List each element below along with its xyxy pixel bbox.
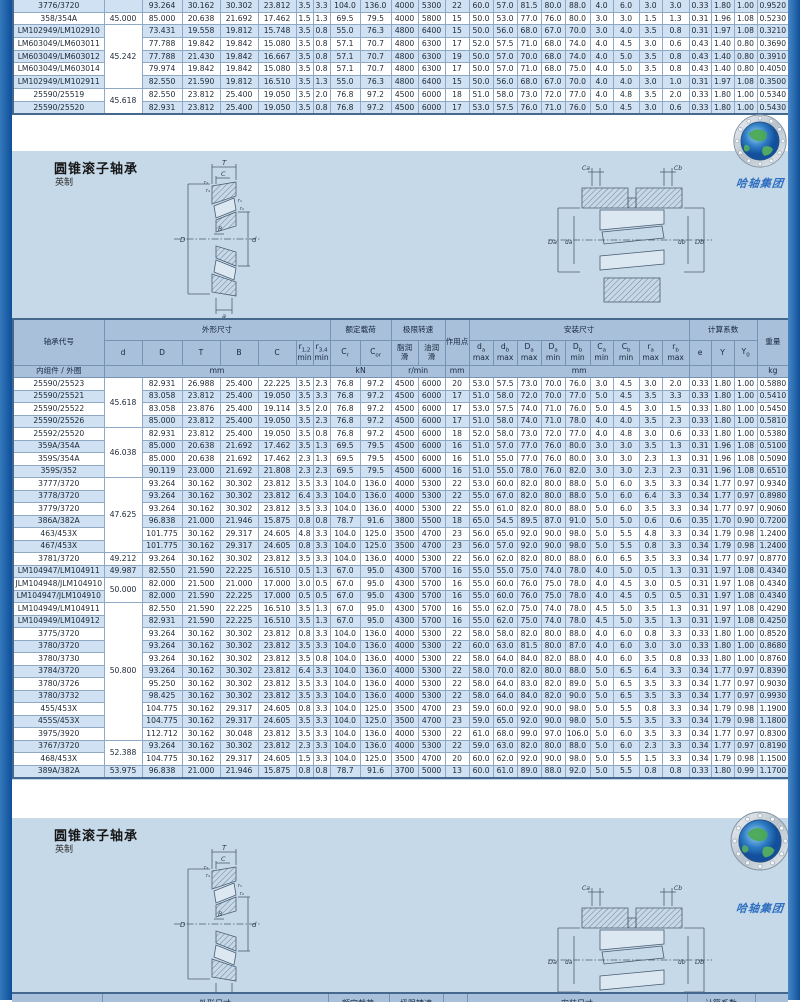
spec-cell: 22	[445, 478, 469, 491]
spec-cell: 3.5	[639, 653, 662, 666]
spec-cell: 73.0	[517, 428, 541, 441]
bearing-code: LM104947/LM104911	[13, 565, 104, 578]
spec-cell: 0.5	[662, 578, 689, 591]
spec-cell: 13	[445, 765, 469, 778]
spec-cell: 0.98	[734, 540, 757, 553]
spec-cell: 3.5	[296, 0, 313, 12]
unit-mm: mm	[445, 366, 469, 378]
spec-cell: 2.3	[662, 465, 689, 478]
spec-cell: 1.3	[313, 453, 330, 466]
spec-cell: 6.0	[613, 503, 639, 516]
spec-cell: 25.400	[220, 378, 258, 391]
spec-cell: 71.0	[541, 403, 565, 416]
spec-cell: 30.162	[182, 715, 220, 728]
col-header: d	[104, 341, 142, 366]
spec-cell: 0.34	[689, 540, 711, 553]
spec-cell: 3.5	[296, 378, 313, 391]
spec-cell: 104.0	[330, 728, 360, 741]
spec-cell: 1.3	[662, 603, 689, 616]
spec-cell: 5300	[418, 665, 445, 678]
spec-cell: 4.0	[590, 38, 613, 51]
spec-cell: 17	[445, 415, 469, 428]
spec-cell: 79.974	[142, 63, 182, 76]
spec-cell: 4500	[391, 440, 418, 453]
dim-label-r1: r₁	[238, 198, 242, 204]
spec-cell: 51.0	[469, 440, 493, 453]
spec-cell: 1.80	[711, 88, 734, 101]
spec-cell: 5300	[418, 653, 445, 666]
spec-cell: 3.3	[313, 490, 330, 503]
spec-cell: 5.5	[613, 703, 639, 716]
spec-cell: 18	[445, 515, 469, 528]
spec-cell: 1.3	[662, 12, 689, 25]
spec-cell: 1.5	[662, 403, 689, 416]
spec-cell: 67.0	[330, 578, 360, 591]
spec-cell: 6000	[418, 378, 445, 391]
spec-cell: 5300	[418, 553, 445, 566]
spec-cell: 3800	[391, 515, 418, 528]
dim-label-D: D	[180, 921, 186, 929]
bearing-code: 463/453X	[13, 528, 104, 541]
spec-cell: 0.5880	[757, 378, 789, 391]
spec-cell: 3.5	[296, 415, 313, 428]
dim-label-T: T	[222, 159, 227, 167]
spec-cell: 25.400	[220, 390, 258, 403]
spec-cell: 1.97	[711, 590, 734, 603]
spec-cell: 50.0	[469, 50, 493, 63]
spec-cell: 4.0	[590, 88, 613, 101]
spec-cell: 3.3	[662, 503, 689, 516]
spec-cell: 78.0	[565, 590, 590, 603]
col-header: Cr	[330, 341, 360, 366]
spec-cell: 0.3910	[757, 50, 789, 63]
spec-cell: 75.0	[565, 63, 590, 76]
spec-cell: 17	[445, 63, 469, 76]
spec-cell: 16	[445, 603, 469, 616]
col-group-speed: 极限转速	[400, 998, 432, 1002]
spec-cell: 30.162	[182, 503, 220, 516]
spec-cell: 23.812	[258, 740, 296, 753]
spec-cell: 84.0	[517, 690, 541, 703]
spec-cell: 85.000	[142, 12, 182, 25]
dim-label-r4: r₄	[206, 873, 210, 879]
column-divider	[328, 994, 329, 1002]
spec-cell: 1.08	[734, 603, 757, 616]
bearing-code: LM104949/LM104911	[13, 603, 104, 616]
spec-cell: 95.0	[360, 578, 391, 591]
spec-cell: 60.0	[493, 590, 517, 603]
bore-diameter: 49.212	[104, 553, 142, 566]
spec-cell: 0.31	[689, 440, 711, 453]
col-header: rbmax	[662, 341, 689, 366]
spec-cell: 1.1900	[757, 703, 789, 716]
spec-cell: 0.9930	[757, 690, 789, 703]
spec-cell: 1.3	[313, 615, 330, 628]
spec-cell: 3.5	[639, 503, 662, 516]
spec-cell: 136.0	[360, 640, 391, 653]
spec-cell: 30.302	[220, 740, 258, 753]
spec-cell: 30.302	[220, 690, 258, 703]
spec-cell: 0.31	[689, 603, 711, 616]
spec-cell: 3.0	[613, 12, 639, 25]
unit-mm: mm	[469, 366, 689, 378]
spec-cell: 20.638	[182, 12, 220, 25]
bearing-code: 389A/382A	[13, 765, 104, 778]
spec-cell: 4.0	[590, 590, 613, 603]
spec-cell: 93.264	[142, 640, 182, 653]
spec-cell: 1.79	[711, 753, 734, 766]
spec-cell: 16	[445, 440, 469, 453]
spec-cell: 30.162	[182, 540, 220, 553]
spec-cell: 1.08	[734, 578, 757, 591]
spec-cell: 76.0	[541, 12, 565, 25]
spec-cell: 0.97	[734, 553, 757, 566]
spec-cell: 4.0	[590, 0, 613, 12]
spec-cell: 67.0	[541, 25, 565, 38]
spec-cell: 29.317	[220, 715, 258, 728]
spec-cell: 104.0	[330, 690, 360, 703]
spec-cell: 1.08	[734, 615, 757, 628]
spec-cell: 0.5090	[757, 453, 789, 466]
spec-cell: 0.98	[734, 703, 757, 716]
spec-cell: 3.3	[662, 728, 689, 741]
spec-cell: 1.80	[711, 378, 734, 391]
spec-cell: 0.5410	[757, 390, 789, 403]
spec-cell: 0.8	[313, 50, 330, 63]
dim-label-Ca: Ca	[582, 885, 590, 892]
spec-cell: 57.0	[493, 440, 517, 453]
spec-cell: 6000	[418, 101, 445, 114]
spec-cell: 0.33	[689, 101, 711, 114]
spec-cell: 97.2	[360, 428, 391, 441]
spec-cell: 1.77	[711, 478, 734, 491]
spec-cell: 3.0	[590, 465, 613, 478]
spec-cell: 89.0	[565, 678, 590, 691]
spec-cell: 4.0	[613, 76, 639, 89]
spec-cell: 3.3	[313, 728, 330, 741]
bearing-section-diagram: T C D d B a r₃ r₄ r₁ r₂	[168, 843, 268, 1000]
spec-cell: 2.3	[639, 465, 662, 478]
bearing-code: 3778/3720	[13, 490, 104, 503]
col-header: Dbmin	[565, 341, 590, 366]
spec-cell: 104.0	[330, 715, 360, 728]
spec-cell: 0.97	[734, 728, 757, 741]
spec-cell: 24.605	[258, 703, 296, 716]
spec-cell: 0.4340	[757, 578, 789, 591]
dim-label-Db: Db	[695, 238, 704, 246]
spec-cell: 21.808	[258, 465, 296, 478]
page-left-border	[0, 0, 12, 1000]
spec-cell: 22	[445, 553, 469, 566]
spec-cell: 0.8	[639, 703, 662, 716]
spec-cell: 4.0	[590, 640, 613, 653]
spec-cell: 53.0	[469, 403, 493, 416]
spec-cell: 1.3	[313, 603, 330, 616]
spec-cell: 0.34	[689, 678, 711, 691]
spec-cell: 4.5	[613, 403, 639, 416]
spec-cell: 30.162	[182, 490, 220, 503]
spec-cell: 3.3	[313, 628, 330, 641]
spec-cell: 25.400	[220, 428, 258, 441]
spec-cell: 30.048	[220, 728, 258, 741]
spec-cell: 0.31	[689, 453, 711, 466]
spec-cell: 104.775	[142, 703, 182, 716]
spec-cell: 64.0	[493, 653, 517, 666]
spec-cell: 19.812	[220, 76, 258, 89]
spec-cell: 6000	[418, 453, 445, 466]
col-header: e	[689, 341, 711, 366]
spec-cell: 97.0	[541, 728, 565, 741]
spec-cell: 0.80	[734, 50, 757, 63]
spec-cell: 5.0	[590, 478, 613, 491]
spec-cell: 55.0	[330, 76, 360, 89]
spec-cell: 4.8	[296, 528, 313, 541]
spec-cell: 1.1800	[757, 715, 789, 728]
spec-cell: 72.0	[541, 88, 565, 101]
spec-cell: 2.3	[296, 465, 313, 478]
spec-cell: 60.0	[469, 640, 493, 653]
spec-cell: 80.0	[565, 440, 590, 453]
spec-cell: 3.0	[639, 428, 662, 441]
spec-cell: 1.5	[296, 12, 313, 25]
spec-cell: 6000	[418, 465, 445, 478]
spec-cell: 4000	[391, 478, 418, 491]
spec-cell: 1.08	[734, 565, 757, 578]
spec-cell: 5.0	[590, 101, 613, 114]
spec-cell: 0.97	[734, 690, 757, 703]
spec-cell: 0.99	[734, 765, 757, 778]
spec-cell: 65.0	[469, 515, 493, 528]
spec-cell: 82.0	[517, 553, 541, 566]
spec-cell: 5.0	[590, 503, 613, 516]
spec-cell: 76.0	[517, 101, 541, 114]
spec-cell: 82.550	[142, 76, 182, 89]
spec-cell: 1.80	[711, 765, 734, 778]
spec-cell: 0.9060	[757, 503, 789, 516]
spec-cell: 0.35	[689, 515, 711, 528]
spec-cell: 82.0	[517, 628, 541, 641]
spec-cell: 85.000	[142, 453, 182, 466]
spec-cell: 4.0	[590, 76, 613, 89]
spec-cell: 2.3	[639, 740, 662, 753]
spec-cell: 3.3	[662, 528, 689, 541]
spec-cell: 3.3	[662, 678, 689, 691]
spec-cell: 3.3	[313, 478, 330, 491]
spec-cell: 30.162	[182, 728, 220, 741]
spec-cell: 84.0	[517, 653, 541, 666]
spec-cell: 0.33	[689, 403, 711, 416]
spec-cell: 23.812	[258, 490, 296, 503]
spec-cell: 23.812	[258, 678, 296, 691]
spec-cell: 22	[445, 740, 469, 753]
spec-cell: 21.590	[182, 603, 220, 616]
page-right-border	[788, 0, 800, 1000]
spec-cell: 57.1	[330, 63, 360, 76]
spec-cell: 3.5	[639, 415, 662, 428]
spec-cell: 97.2	[360, 390, 391, 403]
spec-cell: 3.5	[296, 640, 313, 653]
spec-cell: 4500	[391, 403, 418, 416]
spec-cell: 19.050	[258, 88, 296, 101]
spec-cell: 4000	[391, 628, 418, 641]
spec-cell: 2.3	[296, 453, 313, 466]
spec-cell: 19.812	[220, 25, 258, 38]
spec-cell: 1.79	[711, 540, 734, 553]
spec-cell: 6000	[418, 440, 445, 453]
bore-diameter: 45.000	[104, 12, 142, 25]
spec-cell: 19.842	[220, 63, 258, 76]
spec-cell: 87.0	[565, 640, 590, 653]
dim-label-da: da	[565, 959, 573, 966]
dim-label-D: D	[180, 236, 186, 244]
bearing-code: 3780/3732	[13, 690, 104, 703]
spec-cell: 5800	[418, 12, 445, 25]
spec-cell: 0.34	[689, 665, 711, 678]
column-divider	[443, 994, 444, 1002]
spec-cell: 5700	[418, 615, 445, 628]
spec-cell: 17	[445, 38, 469, 51]
spec-cell: 82.0	[517, 490, 541, 503]
col-header: Y	[711, 341, 734, 366]
spec-cell: 6.0	[613, 478, 639, 491]
spec-cell: 20.638	[182, 440, 220, 453]
spec-cell: 3.0	[590, 440, 613, 453]
spec-cell: 4500	[391, 428, 418, 441]
dim-label-r4: r₄	[206, 188, 210, 194]
column-divider	[389, 994, 390, 1002]
spec-cell: 6000	[418, 390, 445, 403]
spec-cell: 78.7	[330, 515, 360, 528]
spec-cell: 54.5	[493, 515, 517, 528]
spec-cell: 19.050	[258, 415, 296, 428]
spec-cell: 16	[445, 615, 469, 628]
spec-cell: 58.0	[469, 653, 493, 666]
spec-cell: 23.812	[258, 628, 296, 641]
spec-cell: 5300	[418, 503, 445, 516]
spec-cell: 6000	[418, 428, 445, 441]
spec-cell: 88.0	[565, 0, 590, 12]
spec-cell: 1.3	[662, 565, 689, 578]
bearing-code: LM102949/LM102911	[13, 76, 104, 89]
spec-cell: 23.812	[258, 503, 296, 516]
spec-cell: 20	[445, 753, 469, 766]
spec-cell: 50.0	[469, 25, 493, 38]
spec-cell: 0.33	[689, 0, 711, 12]
spec-cell: 20	[445, 378, 469, 391]
bearing-code: 358/354A	[13, 12, 104, 25]
spec-cell: 88.0	[565, 478, 590, 491]
spec-cell: 5700	[418, 590, 445, 603]
spec-cell: 0.33	[689, 653, 711, 666]
spec-cell: 4300	[391, 590, 418, 603]
spec-cell: 0.34	[689, 478, 711, 491]
spec-cell: 78.0	[565, 603, 590, 616]
spec-cell: 22	[445, 678, 469, 691]
spec-cell: 1.08	[734, 440, 757, 453]
dim-label-Db: Db	[695, 958, 704, 966]
spec-cell: 3.5	[296, 690, 313, 703]
bearing-code: 3767/3720	[13, 740, 104, 753]
globe-bearing-icon	[729, 810, 791, 872]
spec-cell: 82.000	[142, 590, 182, 603]
spec-cell: 92.0	[517, 715, 541, 728]
bearing-code: LM104949/LM104912	[13, 615, 104, 628]
spec-cell: 3.3	[313, 740, 330, 753]
spec-cell: 16.510	[258, 603, 296, 616]
spec-cell: 51.0	[469, 88, 493, 101]
section-subtitle: 英制	[55, 842, 73, 855]
col-group-load: 额定载荷	[342, 998, 374, 1002]
spec-cell: 73.0	[517, 88, 541, 101]
spec-cell: 1.00	[734, 403, 757, 416]
spec-cell: 57.0	[493, 0, 517, 12]
spec-cell: 1.3	[313, 12, 330, 25]
spec-cell: 3.3	[662, 628, 689, 641]
spec-cell: 5000	[418, 765, 445, 778]
spec-cell: 21.692	[220, 440, 258, 453]
spec-cell: 65.0	[493, 528, 517, 541]
spec-cell: 96.838	[142, 765, 182, 778]
spec-cell: 21.430	[182, 50, 220, 63]
spec-cell: 79.5	[360, 453, 391, 466]
spec-cell: 67.0	[330, 603, 360, 616]
spec-cell: 4.8	[613, 428, 639, 441]
spec-cell: 17	[445, 390, 469, 403]
spec-cell: 5300	[418, 478, 445, 491]
spec-cell: 1.77	[711, 490, 734, 503]
spec-cell: 4700	[418, 753, 445, 766]
spec-cell: 60.0	[469, 753, 493, 766]
col-header-assembly: 内组件 / 外圈	[13, 366, 104, 378]
spec-cell: 59.0	[469, 703, 493, 716]
dim-label-Cb: Cb	[674, 885, 682, 892]
spec-cell: 4.5	[590, 615, 613, 628]
spec-cell: 22	[445, 628, 469, 641]
spec-cell: 68.0	[517, 76, 541, 89]
spec-cell: 57.5	[493, 38, 517, 51]
spec-cell: 4.0	[613, 25, 639, 38]
bore-diameter: 46.038	[104, 428, 142, 478]
spec-cell: 58.0	[493, 628, 517, 641]
spec-cell: 98.0	[565, 528, 590, 541]
spec-cell: 78.0	[565, 615, 590, 628]
spec-cell: 0.7200	[757, 515, 789, 528]
spec-cell: 30.162	[182, 528, 220, 541]
col-header: damax	[469, 341, 493, 366]
spec-cell: 0.6	[639, 515, 662, 528]
spec-cell: 82.0	[517, 740, 541, 753]
spec-cell: 3.0	[296, 578, 313, 591]
spec-cell: 104.0	[330, 753, 360, 766]
spec-cell: 77.788	[142, 38, 182, 51]
spec-cell: 82.0	[517, 478, 541, 491]
spec-cell: 91.6	[360, 765, 391, 778]
col-header: Damax	[517, 341, 541, 366]
spec-cell: 73.0	[517, 378, 541, 391]
spec-cell: 53.0	[469, 101, 493, 114]
spec-cell: 82.0	[541, 690, 565, 703]
spec-cell: 88.0	[565, 490, 590, 503]
spec-cell: 3500	[391, 540, 418, 553]
spec-cell: 4.8	[639, 528, 662, 541]
spec-cell: 3.3	[313, 678, 330, 691]
spec-cell: 55.0	[493, 465, 517, 478]
spec-cell: 6.0	[613, 0, 639, 12]
spec-cell: 6.5	[613, 665, 639, 678]
spec-cell: 51.0	[469, 390, 493, 403]
spec-cell: 18	[445, 88, 469, 101]
spec-cell: 57.0	[493, 63, 517, 76]
